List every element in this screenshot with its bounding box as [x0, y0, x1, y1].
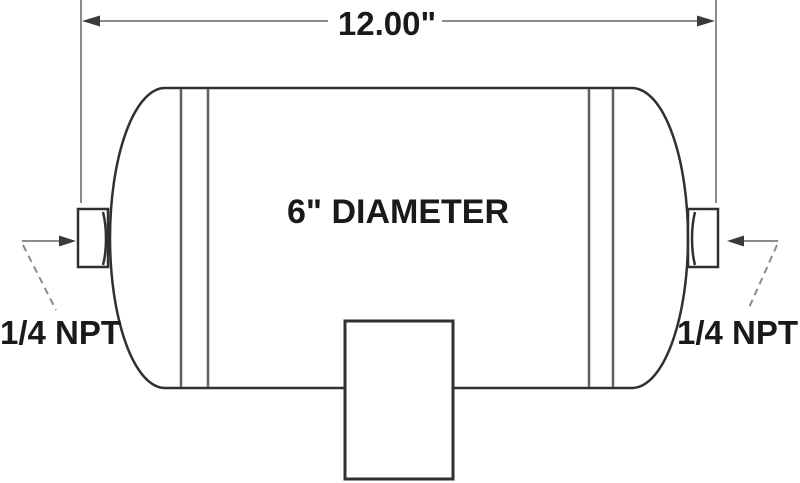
- dimension-arrow-right-icon: [697, 16, 715, 27]
- mounting-bracket: [345, 321, 453, 479]
- right-port-label: 1/4 NPT: [677, 314, 798, 351]
- left-leader-diagonal: [23, 245, 56, 310]
- diameter-label: 6" DIAMETER: [287, 193, 509, 231]
- right-leader-diagonal: [748, 245, 777, 310]
- left-port-label: 1/4 NPT: [0, 314, 121, 351]
- drawing-canvas: 12.00" 6" DIAMETER 1/4 NPT 1/4 NPT: [0, 0, 800, 483]
- right-leader-arrow-icon: [727, 236, 744, 247]
- dimension-arrow-left-icon: [82, 16, 100, 27]
- air-tank-diagram: 12.00" 6" DIAMETER 1/4 NPT 1/4 NPT: [0, 0, 800, 483]
- length-dimension-label: 12.00": [338, 5, 436, 42]
- left-leader-arrow-icon: [59, 236, 76, 247]
